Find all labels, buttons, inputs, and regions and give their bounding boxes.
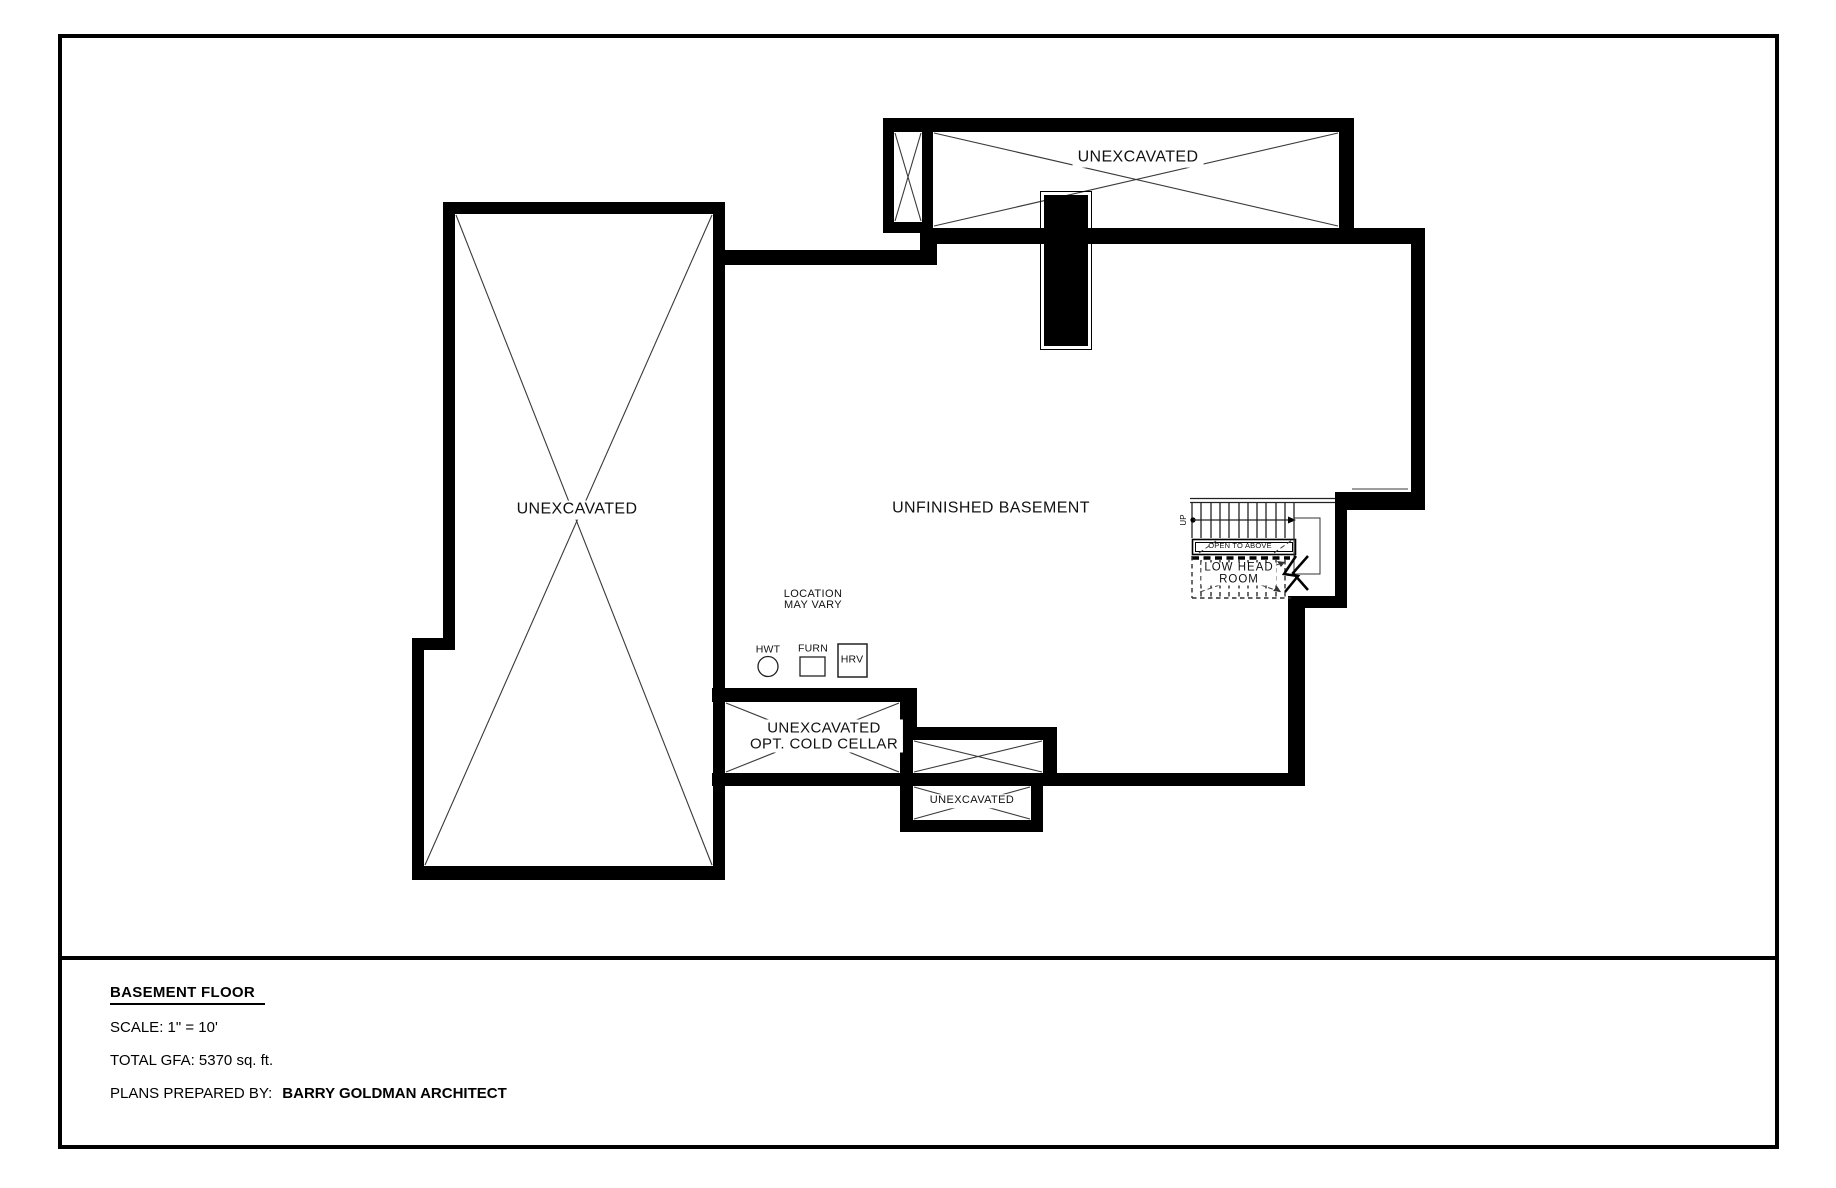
label-location-line2: MAY VARY [784, 600, 843, 611]
drawing-sheet: UNEXCAVATED UNEXCAVATED UNFINISHED BASEM… [0, 0, 1836, 1188]
label-low-head-room: LOW HEAD ROOM [1201, 563, 1276, 586]
label-left-unexcavated: UNEXCAVATED [512, 501, 643, 520]
label-hrv: HRV [841, 654, 864, 665]
plan-title: BASEMENT FLOOR [110, 984, 265, 1005]
label-open-to-above: OPEN TO ABOVE [1208, 542, 1272, 550]
prepared-by-row: PLANS PREPARED BY:BARRY GOLDMAN ARCHITEC… [110, 1085, 507, 1102]
label-bottom-unexcavated: UNEXCAVATED [925, 794, 1019, 808]
label-hwt: HWT [756, 644, 781, 655]
furn-symbol [800, 657, 825, 676]
label-low-head-line1: LOW HEAD [1204, 563, 1273, 575]
gfa-note: TOTAL GFA: 5370 sq. ft. [110, 1052, 273, 1069]
label-low-head-line2: ROOM [1204, 574, 1273, 586]
label-cold-cellar: UNEXCAVATED OPT. COLD CELLAR [745, 720, 903, 753]
label-cold-cellar-line2: OPT. COLD CELLAR [750, 736, 898, 752]
label-location-may-vary: LOCATION MAY VARY [784, 589, 843, 611]
label-stair-up: UP [1180, 514, 1188, 525]
architect-name: BARRY GOLDMAN ARCHITECT [282, 1085, 506, 1102]
label-unfinished-basement: UNFINISHED BASEMENT [892, 501, 1090, 518]
label-cold-cellar-line1: UNEXCAVATED [750, 721, 898, 737]
prepared-by-label: PLANS PREPARED BY: [110, 1085, 272, 1102]
label-top-unexcavated: UNEXCAVATED [1073, 149, 1204, 168]
floor-plan-drawing [0, 0, 1836, 1188]
scale-note: SCALE: 1" = 10' [110, 1019, 218, 1036]
hwt-symbol [758, 657, 778, 677]
break-line-symbol [1293, 556, 1308, 590]
label-furn: FURN [798, 643, 828, 654]
title-block-row: BASEMENT FLOOR [110, 984, 265, 1001]
